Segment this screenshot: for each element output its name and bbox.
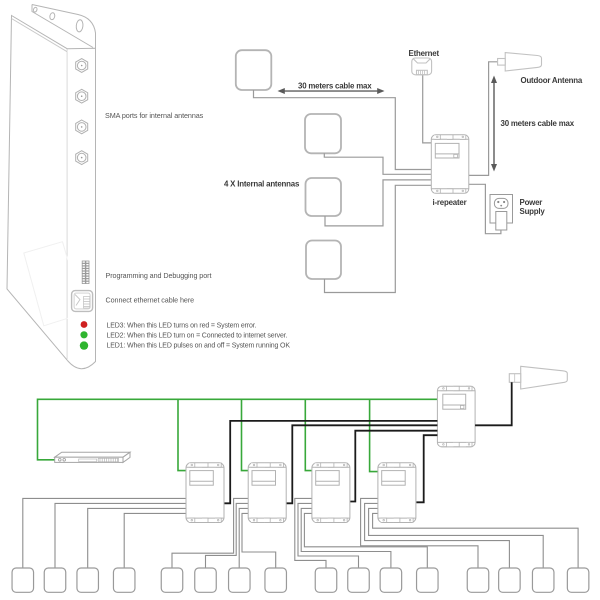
svg-text:LED3: When this LED turns on: LED3: When this LED turns on red = Syste… [107,323,257,330]
svg-text:Outdoor Antenna: Outdoor Antenna [521,76,583,85]
svg-text:Programming and Debugging port: Programming and Debugging port [106,271,212,280]
svg-text:SMA ports for internal antenna: SMA ports for internal antennas [105,111,204,120]
svg-text:LED1: When this LED pulses on: LED1: When this LED pulses on and off = … [107,343,291,350]
svg-text:30 meters cable max: 30 meters cable max [501,119,575,128]
svg-text:i-repeater: i-repeater [433,198,467,207]
svg-text:4 X Internal antennas: 4 X Internal antennas [224,179,300,188]
svg-text:Connect ethernet cable here: Connect ethernet cable here [106,296,195,305]
svg-text:LED2: When this LED turn on =: LED2: When this LED turn on = Connected … [107,333,288,340]
svg-text:Supply: Supply [520,207,546,216]
svg-text:30 meters cable max: 30 meters cable max [298,82,372,91]
svg-text:Ethernet: Ethernet [409,49,440,58]
